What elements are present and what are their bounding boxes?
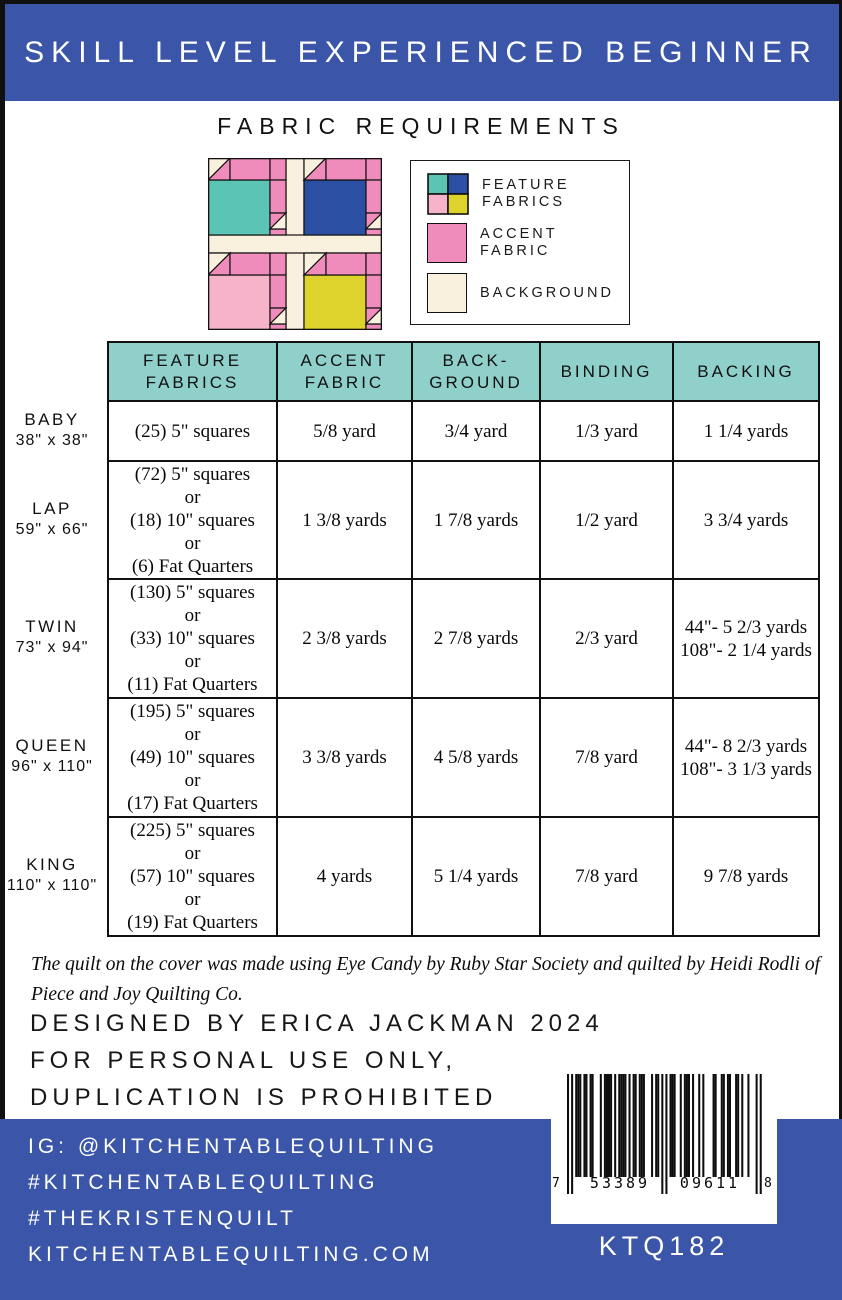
legend-row-background: BACKGROUND (427, 273, 614, 313)
accent-fabric-swatch (427, 223, 467, 263)
block-quadrant-teal (208, 158, 286, 235)
cell-accent: 1 3/8 yards (277, 461, 412, 579)
col-header-backing: BACKING (673, 342, 819, 401)
table-row-king: (225) 5" squares or (57) 10" squares or … (108, 817, 819, 936)
cell-backing: 44"- 5 2/3 yards 108"- 2 1/4 yards (673, 579, 819, 698)
table-row-queen: (195) 5" squares or (49) 10" squares or … (108, 698, 819, 817)
size-label-baby: BABY 38" x 38" (0, 409, 104, 451)
size-name: QUEEN (0, 735, 104, 756)
size-dims: 96" x 110" (0, 756, 104, 777)
feature-fabrics-swatch (427, 173, 469, 215)
cell-binding: 7/8 yard (540, 817, 673, 936)
size-name: KING (0, 854, 104, 875)
cell-binding: 1/3 yard (540, 401, 673, 461)
size-label-lap: LAP 59" x 66" (0, 498, 104, 540)
hashtag-thekristenquilt: #THEKRISTENQUILT (28, 1207, 297, 1231)
cell-background: 2 7/8 yards (412, 579, 540, 698)
barcode-digit-group2: 09611 (671, 1174, 749, 1192)
cell-feature: (195) 5" squares or (49) 10" squares or … (108, 698, 277, 817)
cell-backing: 9 7/8 yards (673, 817, 819, 936)
website-url: KITCHENTABLEQUILTING.COM (28, 1243, 434, 1267)
barcode-digit-group1: 53389 (581, 1174, 659, 1192)
cell-backing: 44"- 8 2/3 yards 108"- 3 1/3 yards (673, 698, 819, 817)
size-dims: 110" x 110" (0, 875, 104, 896)
size-name: TWIN (0, 616, 104, 637)
cell-binding: 2/3 yard (540, 579, 673, 698)
cell-background: 5 1/4 yards (412, 817, 540, 936)
cell-accent: 3 3/8 yards (277, 698, 412, 817)
cell-background: 3/4 yard (412, 401, 540, 461)
pattern-sku: KTQ182 (551, 1231, 777, 1262)
cell-feature: (225) 5" squares or (57) 10" squares or … (108, 817, 277, 936)
duplication-line: DUPLICATION IS PROHIBITED (30, 1084, 497, 1112)
skill-level-band: SKILL LEVEL EXPERIENCED BEGINNER (0, 4, 842, 101)
cell-binding: 7/8 yard (540, 698, 673, 817)
table-header-row: FEATURE FABRICS ACCENT FABRIC BACK- GROU… (108, 342, 819, 401)
fabric-legend: FEATURE FABRICS ACCENT FABRIC BACKGROUND (410, 160, 630, 325)
cell-accent: 5/8 yard (277, 401, 412, 461)
table-row-lap: (72) 5" squares or (18) 10" squares or (… (108, 461, 819, 579)
size-name: BABY (0, 409, 104, 430)
legend-row-feature: FEATURE FABRICS (427, 173, 570, 215)
fabric-requirements-heading: FABRIC REQUIREMENTS (0, 113, 842, 140)
personal-use-line: FOR PERSONAL USE ONLY, (30, 1047, 457, 1075)
block-quadrant-blue (304, 158, 382, 235)
col-header-binding: BINDING (540, 342, 673, 401)
cell-accent: 4 yards (277, 817, 412, 936)
background-swatch (427, 273, 467, 313)
background-label: BACKGROUND (480, 285, 614, 302)
cell-binding: 1/2 yard (540, 461, 673, 579)
legend-row-accent: ACCENT FABRIC (427, 223, 558, 263)
cell-backing: 3 3/4 yards (673, 461, 819, 579)
size-label-queen: QUEEN 96" x 110" (0, 735, 104, 777)
pattern-back-page: SKILL LEVEL EXPERIENCED BEGINNER FABRIC … (0, 0, 842, 1300)
table-row-twin: (130) 5" squares or (33) 10" squares or … (108, 579, 819, 698)
size-name: LAP (0, 498, 104, 519)
barcode-digit-right: 8 (764, 1176, 772, 1191)
cell-feature: (130) 5" squares or (33) 10" squares or … (108, 579, 277, 698)
designed-by-line: DESIGNED BY ERICA JACKMAN 2024 (30, 1010, 604, 1038)
cell-accent: 2 3/8 yards (277, 579, 412, 698)
col-header-background: BACK- GROUND (412, 342, 540, 401)
accent-fabric-label: ACCENT FABRIC (480, 226, 558, 260)
col-header-accent-fabric: ACCENT FABRIC (277, 342, 412, 401)
sashing-horizontal (208, 235, 382, 253)
hashtag-kitchentablequilting: #KITCHENTABLEQUILTING (28, 1171, 378, 1195)
size-label-king: KING 110" x 110" (0, 854, 104, 896)
quilt-block-diagram (208, 158, 382, 330)
size-label-twin: TWIN 73" x 94" (0, 616, 104, 658)
cover-fabric-note: The quilt on the cover was made using Ey… (31, 950, 821, 1010)
cell-feature: (72) 5" squares or (18) 10" squares or (… (108, 461, 277, 579)
block-quadrant-pink (208, 253, 286, 330)
size-dims: 73" x 94" (0, 637, 104, 658)
barcode-digit-left: 7 (552, 1176, 560, 1191)
cell-backing: 1 1/4 yards (673, 401, 819, 461)
table-row-baby: (25) 5" squares 5/8 yard 3/4 yard 1/3 ya… (108, 401, 819, 461)
block-quadrant-yellow (304, 253, 382, 330)
skill-level-title: SKILL LEVEL EXPERIENCED BEGINNER (24, 36, 818, 70)
barcode: 7 53389 09611 8 (551, 1068, 777, 1224)
feature-fabrics-label: FEATURE FABRICS (482, 177, 570, 211)
instagram-handle: IG: @KITCHENTABLEQUILTING (28, 1135, 438, 1159)
cell-feature: (25) 5" squares (108, 401, 277, 461)
fabric-requirements-table: FEATURE FABRICS ACCENT FABRIC BACK- GROU… (107, 341, 820, 937)
size-dims: 38" x 38" (0, 430, 104, 451)
cell-background: 1 7/8 yards (412, 461, 540, 579)
size-dims: 59" x 66" (0, 519, 104, 540)
cell-background: 4 5/8 yards (412, 698, 540, 817)
col-header-feature-fabrics: FEATURE FABRICS (108, 342, 277, 401)
